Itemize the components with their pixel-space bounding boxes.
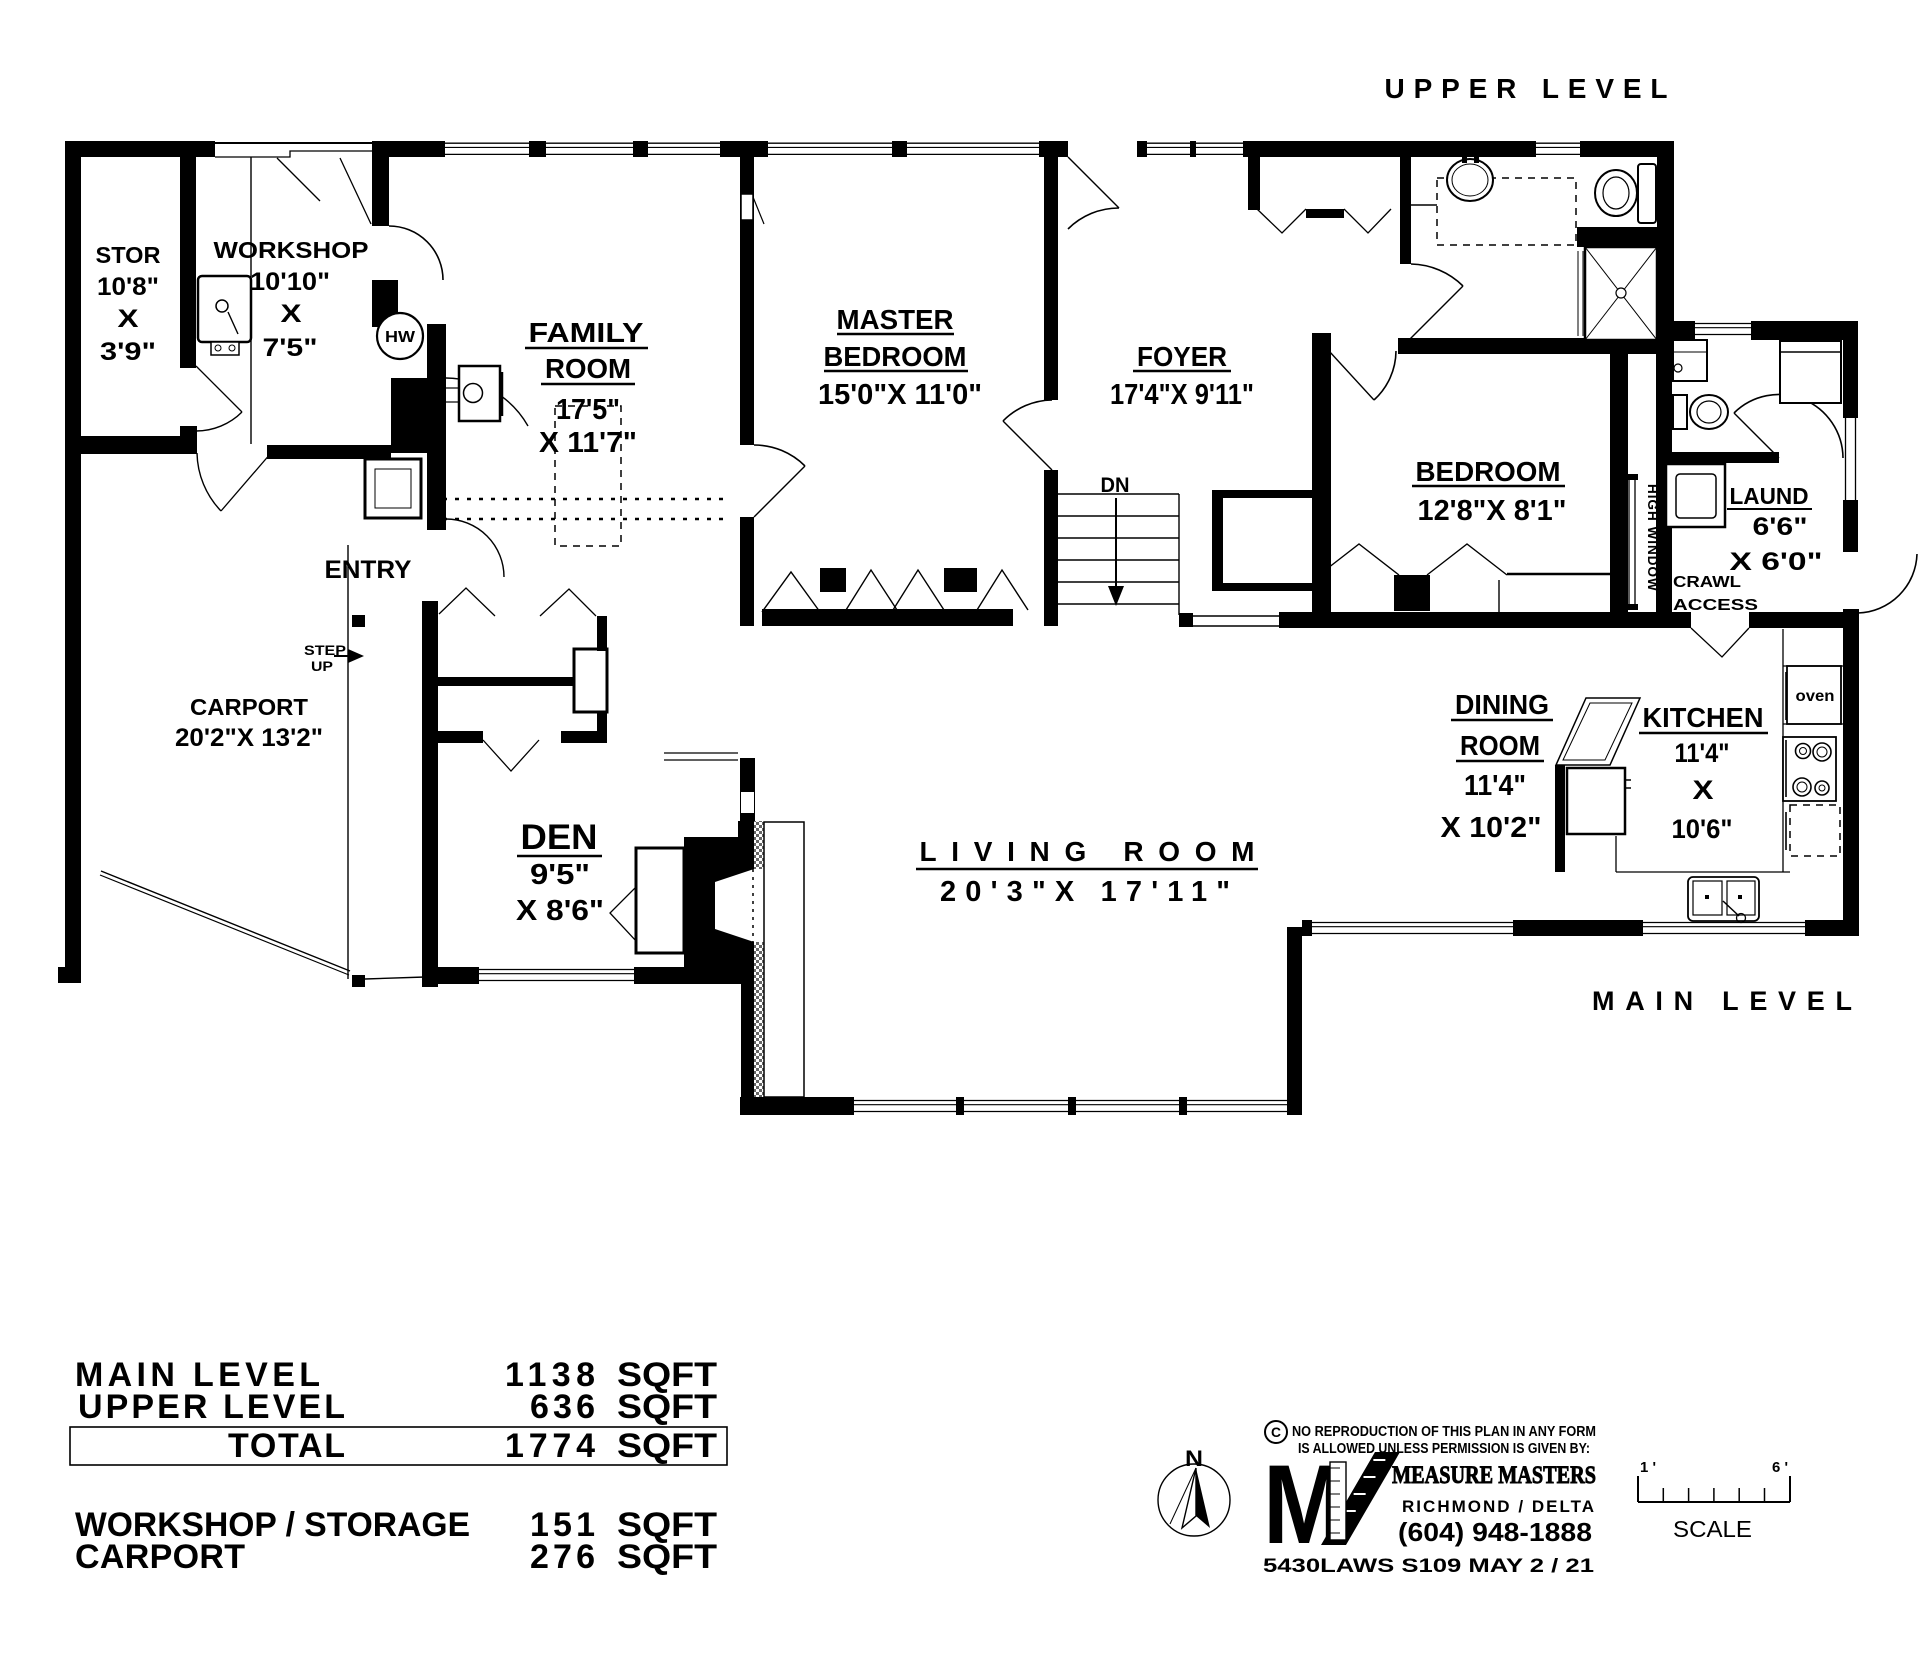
svg-text:17'4"X 9'11": 17'4"X 9'11" — [1110, 379, 1254, 411]
svg-text:CARPORT: CARPORT — [190, 694, 308, 720]
svg-text:FOYER: FOYER — [1137, 341, 1227, 372]
svg-text:DN: DN — [1101, 474, 1130, 497]
svg-text:WORKSHOP: WORKSHOP — [214, 237, 369, 263]
svg-text:X 8'6": X 8'6" — [516, 895, 604, 927]
svg-text:ACCESS: ACCESS — [1673, 597, 1758, 614]
svg-text:6 ': 6 ' — [1772, 1459, 1788, 1476]
svg-text:X 11'7": X 11'7" — [539, 427, 637, 459]
svg-text:17'5": 17'5" — [556, 394, 620, 426]
svg-text:HW: HW — [385, 329, 416, 346]
svg-text:10'6": 10'6" — [1672, 814, 1733, 844]
svg-text:oven: oven — [1796, 688, 1835, 705]
svg-text:12'8"X 8'1": 12'8"X 8'1" — [1418, 495, 1567, 527]
svg-text:X 6'0": X 6'0" — [1730, 548, 1823, 576]
svg-text:X: X — [1693, 775, 1714, 805]
svg-text:ROOM: ROOM — [1460, 730, 1540, 761]
svg-text:ENTRY: ENTRY — [325, 556, 412, 584]
svg-text:7'5": 7'5" — [263, 334, 318, 362]
svg-text:MASTER: MASTER — [837, 304, 954, 335]
svg-text:10'8": 10'8" — [97, 273, 159, 301]
svg-text:BEDROOM: BEDROOM — [1416, 456, 1561, 487]
svg-text:NO REPRODUCTION OF THIS PLAN I: NO REPRODUCTION OF THIS PLAN IN ANY FORM — [1292, 1424, 1596, 1440]
svg-text:STOR: STOR — [96, 242, 161, 268]
svg-text:SQFT: SQFT — [617, 1538, 717, 1576]
svg-text:6'6": 6'6" — [1753, 513, 1808, 541]
svg-text:UP: UP — [311, 659, 333, 674]
svg-text:KITCHEN: KITCHEN — [1643, 702, 1764, 733]
svg-text:11'4": 11'4" — [1464, 770, 1526, 802]
svg-text:636: 636 — [530, 1388, 595, 1426]
svg-text:276: 276 — [530, 1538, 595, 1576]
svg-text:SQFT: SQFT — [617, 1388, 717, 1426]
svg-text:(604) 948-1888: (604) 948-1888 — [1398, 1517, 1592, 1547]
svg-text:CARPORT: CARPORT — [75, 1538, 245, 1576]
svg-text:SCALE: SCALE — [1673, 1516, 1752, 1542]
svg-text:BEDROOM: BEDROOM — [824, 341, 967, 372]
svg-text:15'0"X 11'0": 15'0"X 11'0" — [818, 379, 982, 411]
svg-text:9'5": 9'5" — [530, 859, 590, 891]
svg-text:X 10'2": X 10'2" — [1441, 812, 1542, 844]
svg-text:FAMILY: FAMILY — [529, 317, 644, 348]
svg-text:DEN: DEN — [521, 818, 598, 857]
svg-text:MAIN LEVEL: MAIN LEVEL — [1592, 986, 1852, 1016]
svg-text:CRAWL: CRAWL — [1673, 574, 1741, 591]
svg-text:11'4": 11'4" — [1675, 738, 1730, 768]
svg-text:N: N — [1185, 1446, 1203, 1471]
svg-text:X: X — [281, 300, 302, 328]
svg-text:ROOM: ROOM — [545, 353, 631, 384]
svg-text:TOTAL: TOTAL — [228, 1427, 345, 1465]
svg-text:SQFT: SQFT — [617, 1427, 717, 1465]
svg-text:DINING: DINING — [1455, 689, 1549, 720]
svg-text:C: C — [1271, 1424, 1281, 1440]
svg-text:RICHMOND / DELTA: RICHMOND / DELTA — [1402, 1497, 1594, 1516]
svg-text:5430LAWS S109 MAY 2 / 21: 5430LAWS S109 MAY 2 / 21 — [1263, 1556, 1595, 1577]
svg-text:1 ': 1 ' — [1640, 1459, 1656, 1476]
svg-text:LAUND: LAUND — [1730, 483, 1809, 509]
svg-text:X: X — [118, 305, 139, 333]
svg-text:3'9": 3'9" — [100, 338, 156, 366]
svg-text:MEASURE MASTERS: MEASURE MASTERS — [1392, 1462, 1596, 1489]
svg-text:UPPER LEVEL: UPPER LEVEL — [78, 1388, 345, 1426]
svg-text:UPPER LEVEL: UPPER LEVEL — [1385, 73, 1668, 104]
svg-text:20'2"X 13'2": 20'2"X 13'2" — [175, 724, 323, 752]
svg-text:10'10": 10'10" — [250, 268, 330, 296]
